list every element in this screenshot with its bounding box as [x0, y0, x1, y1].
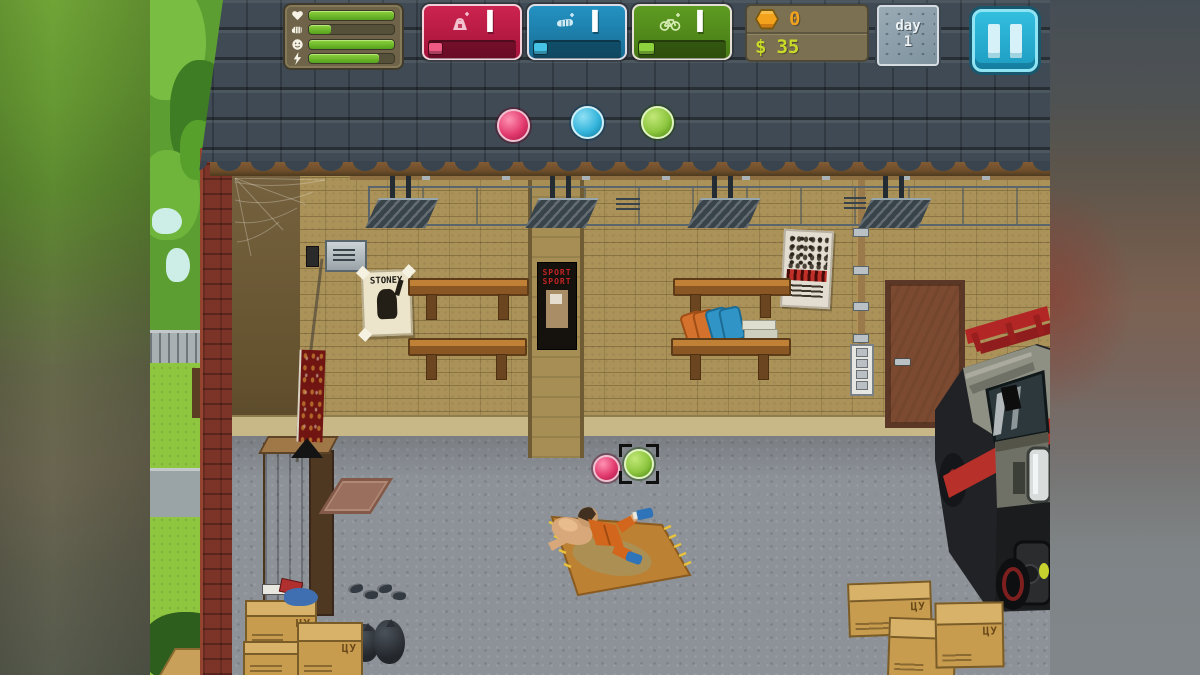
fence-far: [150, 330, 206, 363]
currency-panel: 0 $ 35: [745, 4, 869, 62]
pipe-clamp: [853, 302, 869, 311]
heart-icon: [291, 9, 304, 22]
mood-icon: [291, 38, 304, 51]
box-stamp: ЦУ: [983, 625, 998, 638]
sky-patch: [166, 248, 190, 282]
fist-icon: [291, 23, 304, 36]
agility-progress-fill: [534, 43, 547, 54]
need-row-hunger: [291, 24, 395, 35]
day-label: day: [879, 18, 937, 34]
van[interactable]: [935, 290, 1050, 625]
roof-orb-green[interactable]: [641, 106, 674, 139]
coins-value: 0: [789, 8, 800, 30]
need-row-energy: [291, 53, 395, 64]
shelf-leg: [690, 354, 701, 380]
coins-row: 0: [747, 6, 867, 34]
need-row-mood: [291, 39, 395, 50]
strength-progress-track: [428, 40, 516, 59]
shelf-leg: [758, 354, 769, 380]
agility-stat-panel[interactable]: I: [527, 4, 627, 60]
letterbox-blur-left: [0, 0, 150, 675]
stoney-figure: [377, 289, 398, 320]
pipe-clamp: [853, 266, 869, 275]
cardboard-box: ЦУ: [297, 622, 363, 675]
strength-progress-fill: [429, 43, 442, 54]
shelf-leg: [498, 294, 509, 320]
bicycle-icon: [658, 11, 682, 35]
floor-orb-pink[interactable]: [593, 455, 620, 482]
shelf-leg: [426, 354, 437, 380]
pause-button[interactable]: [972, 9, 1038, 72]
coin-icon: [755, 9, 779, 30]
box-stamp: ЦУ: [910, 600, 926, 614]
stamina-level: I: [694, 10, 705, 36]
game-viewport: STONEY SPORT SPORT: [150, 0, 1050, 675]
kettlebell-icon: [448, 11, 472, 35]
pipe-clamp: [853, 334, 869, 343]
pipe-clamp: [853, 228, 869, 237]
shelf-leg: [426, 294, 437, 320]
needs-panel: [283, 3, 404, 70]
training-mat-character[interactable]: [540, 495, 700, 600]
day-counter: day 1: [877, 5, 939, 66]
dollar-sign: $: [755, 36, 766, 58]
pause-bar-icon: [988, 24, 1000, 58]
sport-poster-line2: SPORT: [538, 277, 576, 286]
need-fill: [309, 40, 394, 49]
fist-icon: [553, 11, 577, 35]
agility-progress-track: [533, 40, 621, 59]
stamina-progress-track: [638, 40, 726, 59]
door-handle: [894, 358, 911, 366]
roof-orb-blue[interactable]: [571, 106, 604, 139]
need-fill: [309, 54, 379, 63]
need-track: [308, 39, 395, 50]
red-banner: [296, 350, 325, 443]
screenshot-stage: STONEY SPORT SPORT: [0, 0, 1200, 675]
letterbox-blur-right: [1050, 0, 1200, 675]
sport-poster: SPORT SPORT: [537, 262, 577, 350]
agility-level: I: [589, 10, 600, 36]
fight-poster-red-band: [786, 269, 827, 282]
trash-bag: [374, 620, 405, 664]
box-stamp: ЦУ: [342, 642, 357, 655]
strength-level: I: [484, 10, 495, 36]
shelf-leg: [496, 354, 507, 380]
fight-poster-figures: [787, 234, 829, 270]
shelf-right-bottom: [671, 338, 791, 356]
vent-grille: [333, 247, 355, 261]
stamina-progress-fill: [639, 43, 654, 54]
power-strip: [850, 344, 874, 396]
sport-poster-figure: [546, 290, 568, 328]
need-track: [308, 10, 395, 21]
cardboard-box: ЦУ: [934, 601, 1004, 668]
stoney-poster: STONEY: [361, 269, 413, 337]
need-fill: [309, 11, 394, 20]
strength-stat-panel[interactable]: I: [422, 4, 522, 60]
cash-row: $ 35: [747, 34, 867, 60]
need-fill: [309, 25, 331, 34]
fight-poster-text-lines: [789, 282, 824, 298]
stamina-stat-panel[interactable]: I: [632, 4, 732, 60]
wall-device: [306, 246, 319, 267]
need-track: [308, 24, 395, 35]
need-track: [308, 53, 395, 64]
pause-bar-icon: [1010, 24, 1022, 58]
sport-poster-line1: SPORT: [538, 268, 576, 277]
duct-grille: [616, 196, 640, 210]
duct-grille: [844, 196, 866, 209]
roof-orb-pink[interactable]: [497, 109, 530, 142]
need-row-health: [291, 10, 395, 21]
blue-cloth: [284, 588, 318, 606]
fight-poster: [780, 229, 834, 310]
cash-value: 35: [776, 36, 799, 58]
energy-icon: [291, 52, 304, 65]
day-number: 1: [879, 34, 937, 50]
shelf-leg: [760, 294, 771, 318]
sky-patch: [152, 208, 182, 234]
